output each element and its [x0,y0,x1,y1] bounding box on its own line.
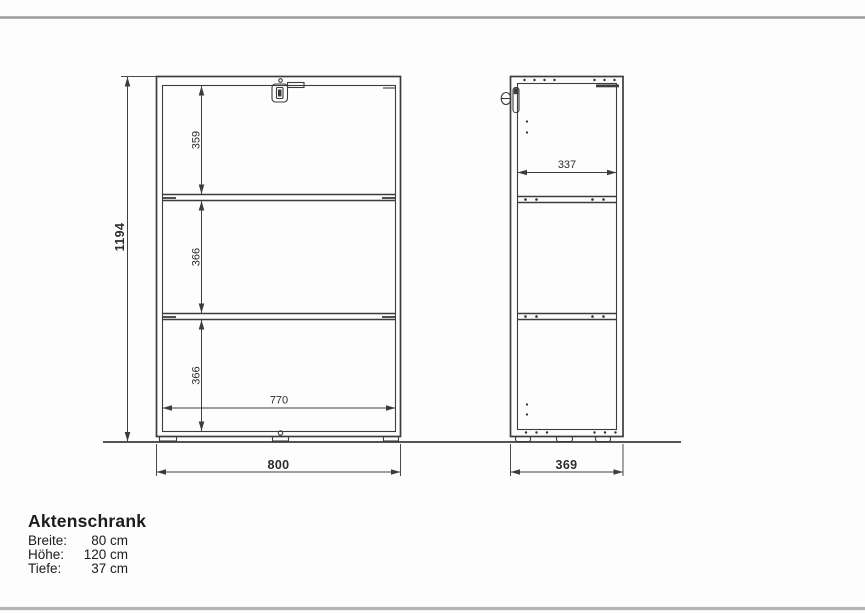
side-shelf-top [518,197,617,203]
side-top-dots [523,79,615,81]
dim-label-compartment-bottom: 366 [191,366,203,384]
dim-compartment-top: 359 [191,86,203,194]
dim-compartment-bottom: 366 [191,320,203,431]
product-title: Aktenschrank [28,511,146,532]
side-pin-dots-upper [526,120,528,133]
spec-label-width: Breite: [28,534,82,548]
spec-label-height: Höhe: [28,548,82,562]
spec-row-depth: Tiefe:37 cm [28,562,146,576]
dim-inner-width: 770 [163,395,396,409]
dim-inner-depth: 337 [518,159,617,173]
spec-row-height: Höhe:120 cm [28,548,146,562]
front-shelf-top [163,195,396,201]
side-outer-outline [511,77,624,437]
dim-label-overall-height: 1194 [113,223,127,252]
dim-label-inner-depth: 337 [558,159,576,171]
dim-label-compartment-top: 359 [191,131,203,149]
side-shelf-bottom [518,314,617,320]
side-bottom-dots [525,431,617,433]
dim-label-compartment-middle: 366 [191,248,203,266]
spec-value-depth: 37 cm [82,562,128,576]
dim-overall-height: 1194 [113,77,157,442]
lock-icon [272,79,304,102]
product-info: Aktenschrank Breite:80 cm Höhe:120 cm Ti… [28,511,146,577]
dim-compartment-middle: 366 [191,201,203,313]
side-top-bracket [596,85,619,88]
side-pin-dots-lower [526,403,528,415]
front-shelf-bottom [163,314,396,320]
dim-overall-width: 800 [157,444,401,476]
side-inner-outline [518,84,617,430]
spec-label-depth: Tiefe: [28,562,82,576]
spec-value-height: 120 cm [82,548,128,562]
spec-row-width: Breite:80 cm [28,534,146,548]
spec-value-width: 80 cm [82,534,128,548]
dim-label-overall-depth: 369 [555,458,577,472]
dim-label-overall-width: 800 [267,458,289,472]
side-view [501,77,623,442]
dim-overall-depth: 369 [511,444,624,476]
dim-label-inner-width: 770 [270,395,288,407]
technical-drawing-page: 1194 359 366 366 770 800 [0,0,865,613]
dimensions: 1194 359 366 366 770 800 [113,77,623,477]
